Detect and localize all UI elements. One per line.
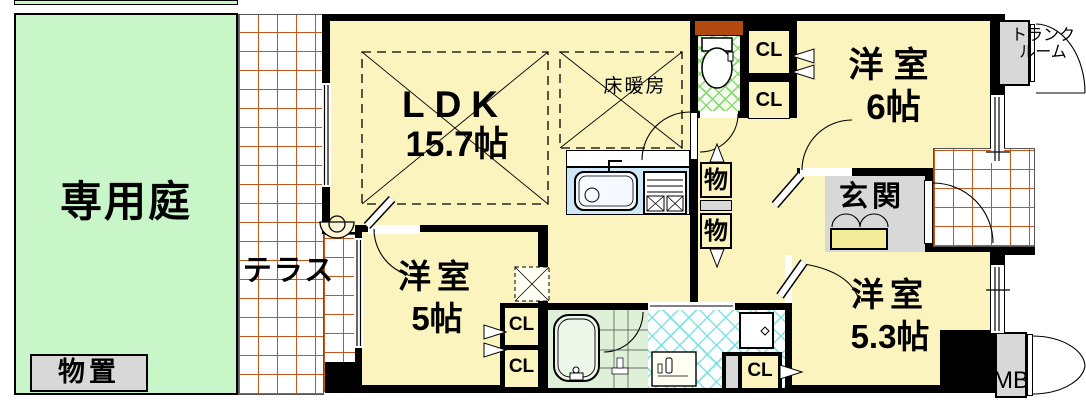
trunk-room-label-line2: ルーム (1019, 44, 1067, 61)
trunk-room-label: トランク ルーム (1000, 28, 1086, 62)
room5-size-label: 5帖 (362, 302, 512, 337)
hall-floor-lower (548, 232, 690, 303)
room6-size-label: 6帖 (797, 90, 990, 127)
porch (933, 148, 1035, 247)
closet-c-label: CL (505, 315, 538, 335)
entrance-label: 玄関 (822, 182, 922, 212)
room5-door-opening (368, 225, 420, 234)
room5-left-window (354, 238, 363, 348)
room6-right-window (991, 95, 1004, 163)
garden-label: 専用庭 (14, 180, 238, 224)
toilet-door-opening (700, 111, 738, 118)
room53-right-window (991, 265, 1004, 333)
room53-door-opening (785, 255, 792, 303)
garden-top-strip (14, 0, 238, 5)
closet-b-label: CL (748, 90, 790, 111)
toilet-shelf (694, 20, 744, 36)
ldk-door-opening (690, 112, 698, 160)
ldk-left-window (322, 83, 331, 187)
closet-e-side (726, 356, 738, 388)
terrace-label: テラス (234, 256, 344, 286)
washroom-door-opening (648, 302, 735, 310)
storage-cabinet-2-label: 物 (700, 219, 732, 244)
storage-shed-label: 物置 (30, 358, 148, 386)
closet-a-label: CL (748, 40, 790, 61)
closet-d-label: CL (505, 357, 538, 377)
floor-heating-label: 床暖房 (580, 77, 690, 97)
storage-gap (700, 200, 732, 211)
room53-name-label: 洋室 (800, 278, 980, 313)
room5-name-label: 洋室 (362, 260, 512, 295)
storage-cabinet-1-label: 物 (700, 168, 732, 193)
meter-box-label: MB (990, 368, 1032, 393)
entrance-door-panel (924, 180, 933, 244)
bathroom-floor (548, 310, 648, 388)
room6-name-label: 洋室 (797, 48, 990, 85)
kitchen-counter-top (566, 150, 690, 167)
meter-box-door-arc-top (1033, 336, 1085, 366)
closet-e-label: CL (742, 361, 778, 381)
floor-plan: 専用庭 物置 テラス LDK 15.7帖 床暖房 CL CL 物 物 洋室 6帖… (0, 0, 1086, 415)
meter-box-door-arc-bottom (1033, 366, 1085, 394)
terrace-upper (238, 14, 324, 395)
room6-door-opening (800, 168, 852, 176)
ldk-size-label: 15.7帖 (352, 127, 562, 164)
entrance-hall-strip (797, 176, 825, 252)
shoe-cabinet (830, 228, 888, 250)
ldk-name-label: LDK (355, 86, 555, 125)
trunk-room-label-line1: トランク (1011, 27, 1075, 44)
corner-wall-block (325, 362, 362, 393)
room53-corner-wall (940, 330, 990, 385)
kitchen-counter (566, 167, 690, 215)
